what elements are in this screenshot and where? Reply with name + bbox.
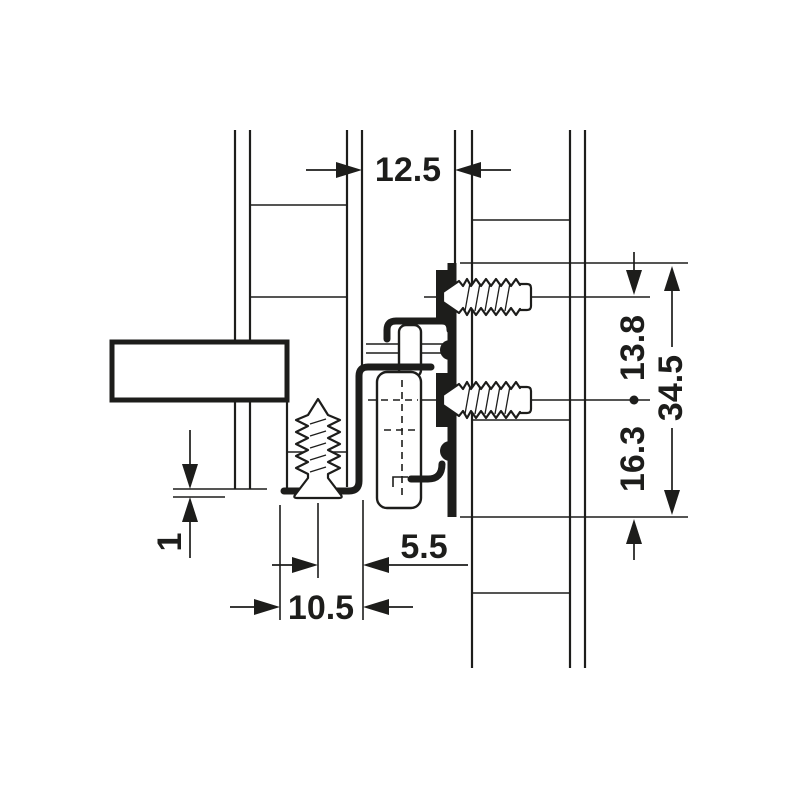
drawing-page: 12.5 13.8 16.3 34.5 1 xyxy=(0,0,800,800)
drawer-side-panel xyxy=(235,130,362,489)
arrow-down-icon xyxy=(182,464,198,489)
dim-label-panel-gap: 12.5 xyxy=(375,151,441,189)
drawer-runner-mounting-drawing: 12.5 13.8 16.3 34.5 1 xyxy=(0,0,800,800)
dim-label-lower-spacing: 16.3 xyxy=(614,426,652,492)
dimension-hole-chain: 13.8 16.3 xyxy=(614,252,652,560)
dimension-screw-to-edge: 5.5 xyxy=(272,528,468,573)
arrow-left-icon xyxy=(455,162,481,178)
dimension-flange-width: 10.5 xyxy=(230,589,413,627)
lower-mounting-screw xyxy=(443,382,531,418)
upper-mounting-screw xyxy=(443,279,531,315)
arrow-left-icon xyxy=(363,599,389,615)
vertical-wood-screw xyxy=(294,399,341,498)
dim-label-runner-height: 34.5 xyxy=(652,355,690,421)
arrow-up-icon xyxy=(626,519,642,544)
arrow-right-icon xyxy=(292,557,318,573)
arrow-left-icon xyxy=(363,557,389,573)
bracket-dimple-upper xyxy=(440,340,450,360)
bracket-dimple-lower xyxy=(440,441,450,461)
arrow-right-icon xyxy=(336,162,362,178)
dim-label-upper-spacing: 13.8 xyxy=(614,315,652,381)
dim-label-flange-width: 10.5 xyxy=(288,589,354,627)
drawer-bottom-panel xyxy=(112,342,287,400)
dimension-runner-height: 34.5 xyxy=(652,266,690,515)
arrow-down-icon xyxy=(664,490,680,515)
dim-label-clearance: 1 xyxy=(151,533,189,552)
dimension-panel-gap: 12.5 xyxy=(306,151,511,189)
arrow-up-icon xyxy=(182,497,198,522)
clip-housing xyxy=(377,372,421,508)
arrow-right-icon xyxy=(254,599,280,615)
arrow-down-icon xyxy=(626,270,642,295)
chain-dimension-dot xyxy=(630,396,639,405)
arrow-up-icon xyxy=(664,266,680,291)
dim-label-screw-to-edge: 5.5 xyxy=(400,528,447,566)
